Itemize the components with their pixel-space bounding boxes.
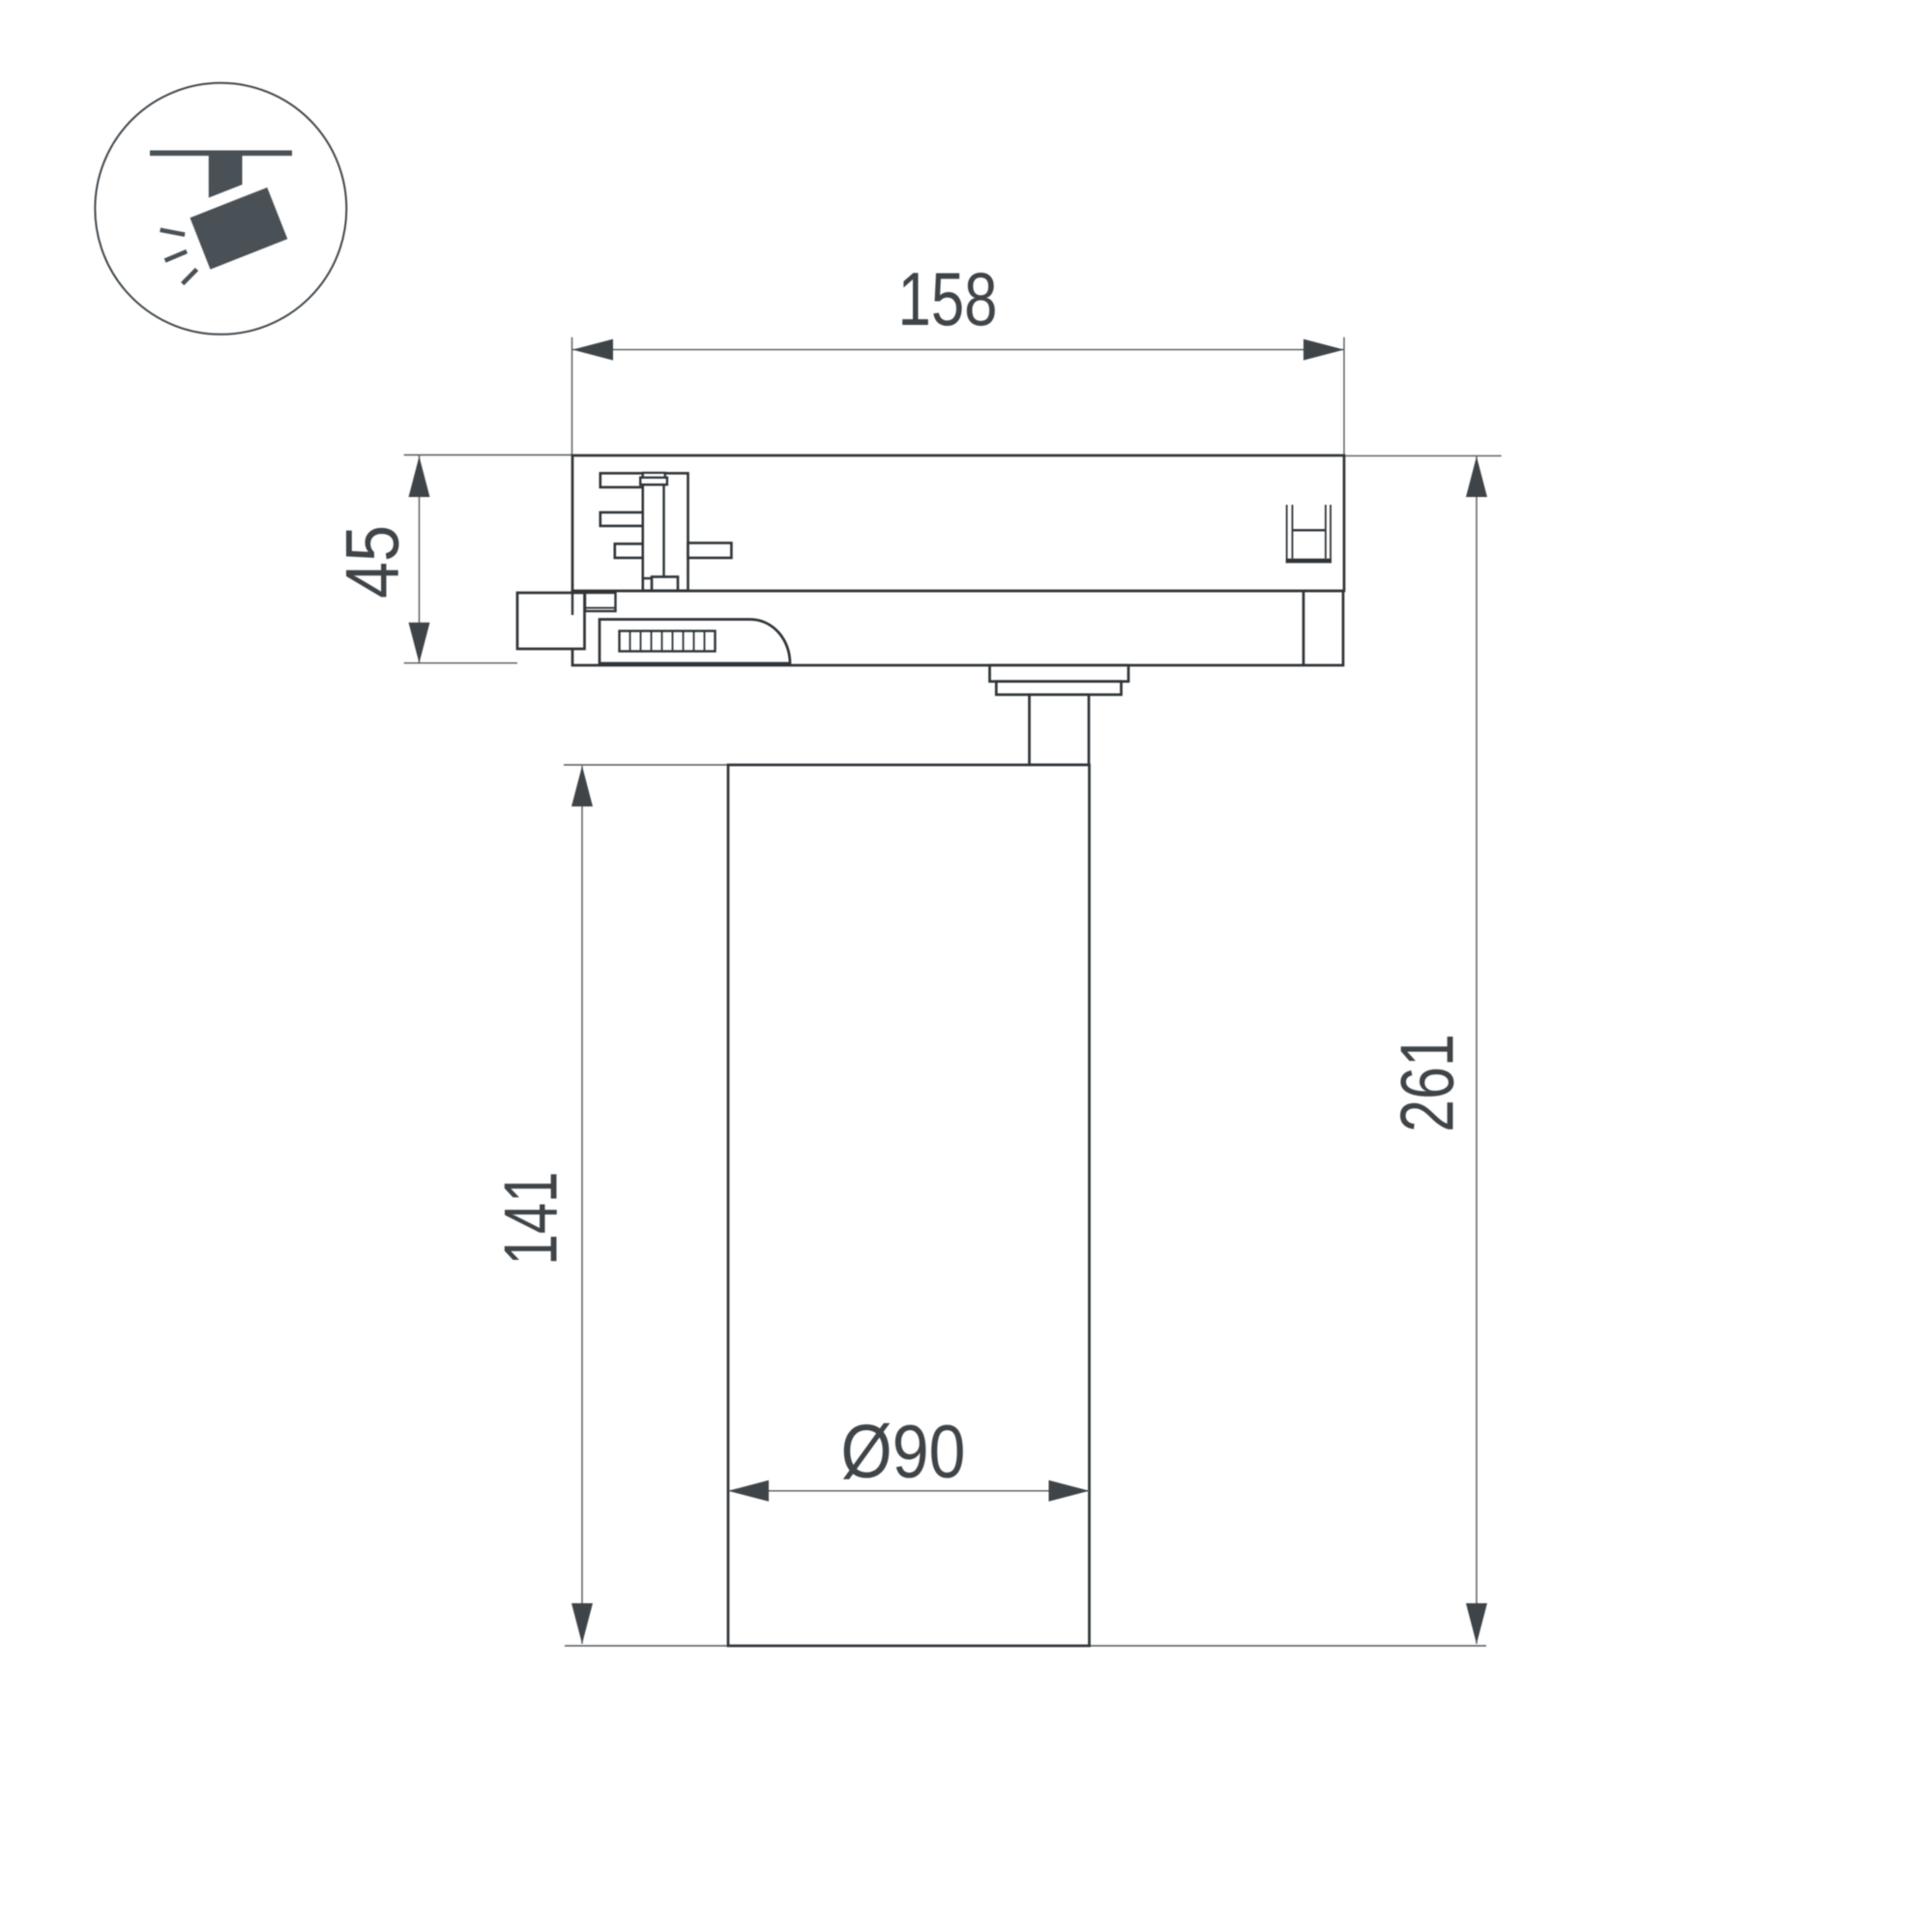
svg-text:158: 158 — [898, 256, 998, 341]
svg-text:261: 261 — [1385, 1034, 1470, 1132]
svg-text:141: 141 — [488, 1172, 573, 1266]
svg-text:Ø90: Ø90 — [841, 1409, 966, 1494]
svg-text:45: 45 — [330, 525, 415, 599]
